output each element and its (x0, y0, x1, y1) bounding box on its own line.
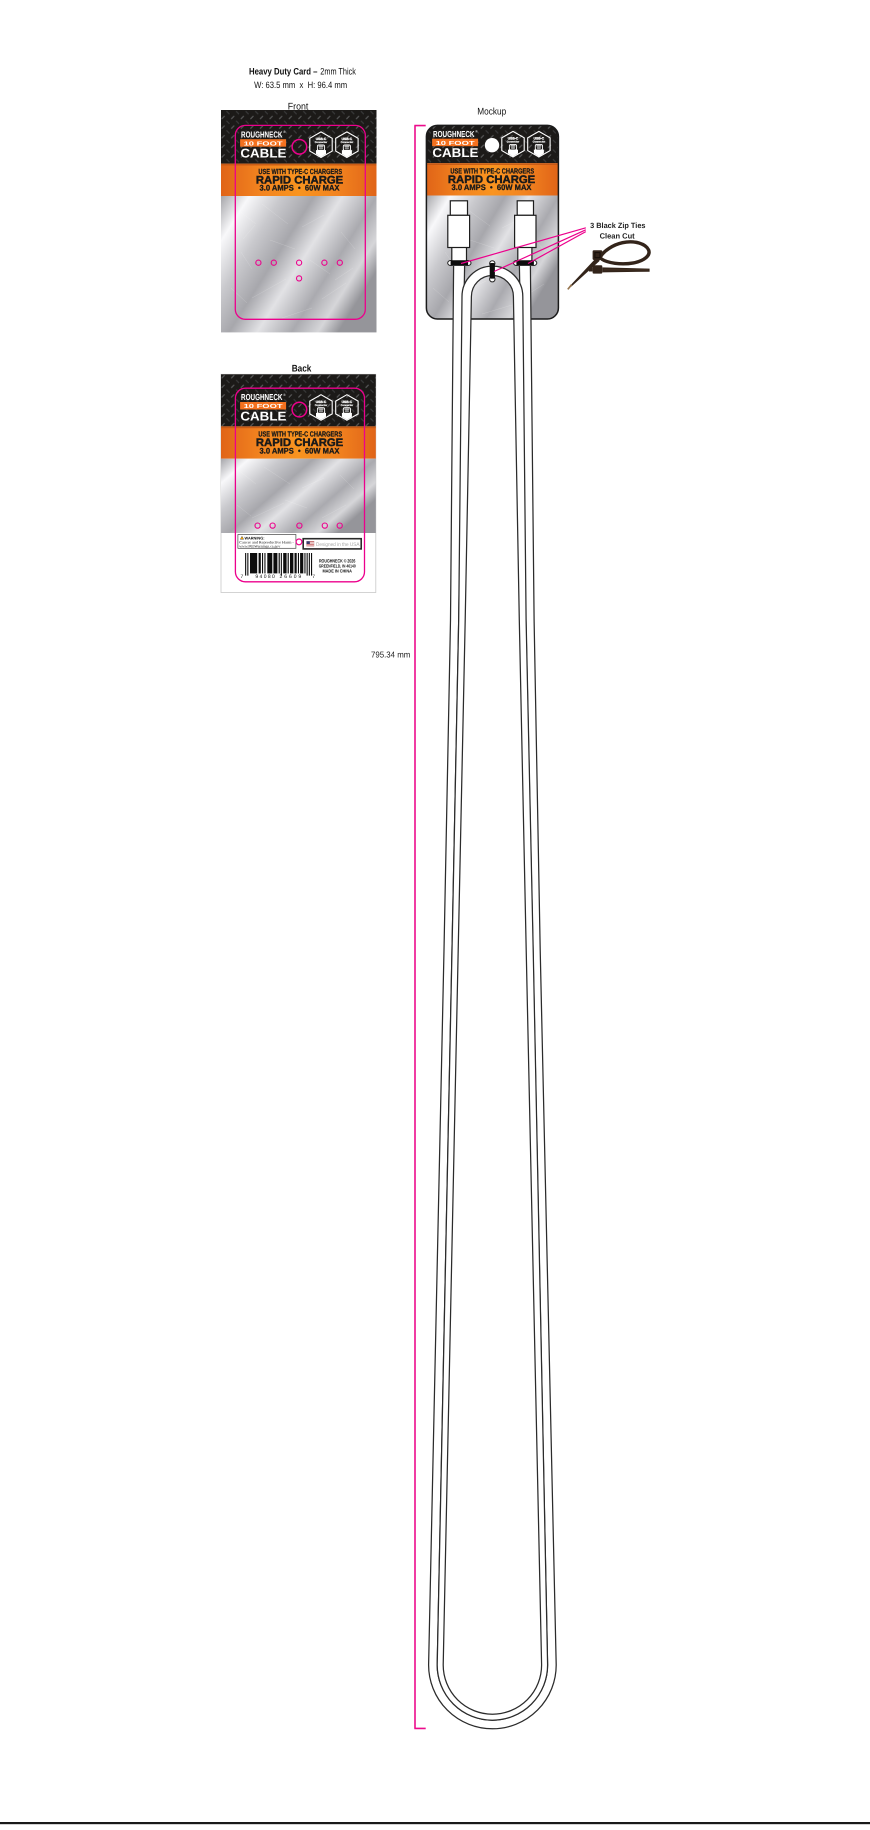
svg-text:www.P65Warnings.ca.gov: www.P65Warnings.ca.gov (239, 544, 280, 548)
svg-text:Heavy Duty Card –: Heavy Duty Card – (249, 66, 318, 77)
svg-text:7: 7 (241, 574, 244, 580)
svg-text:7: 7 (312, 574, 315, 580)
svg-text:2mm Thick: 2mm Thick (320, 66, 356, 77)
svg-text:Mockup: Mockup (477, 106, 506, 117)
svg-text:MADE IN CHINA: MADE IN CHINA (322, 568, 352, 573)
svg-text:WARNING:: WARNING: (245, 535, 265, 540)
svg-text:3 Black Zip Ties: 3 Black Zip Ties (590, 221, 645, 230)
svg-text:W: 63.5 mm x H: 96.4 mm: W: 63.5 mm x H: 96.4 mm (254, 80, 347, 90)
svg-text:795.34 mm: 795.34 mm (371, 650, 410, 660)
svg-text:Designed in the USA: Designed in the USA (316, 542, 360, 548)
svg-text:Back: Back (292, 364, 312, 375)
svg-text:Clean Cut: Clean Cut (600, 231, 636, 240)
